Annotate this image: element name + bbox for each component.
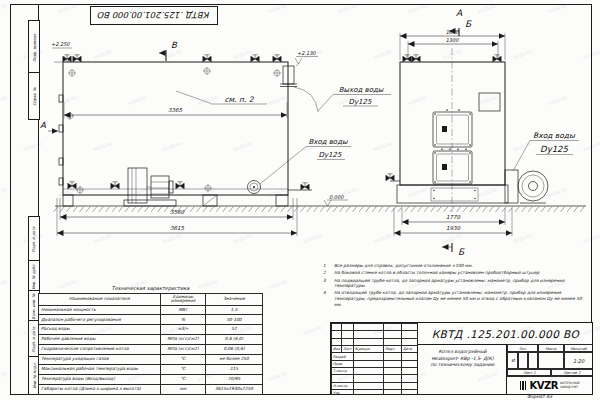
table-cell: МВт [161,305,206,315]
dim-3615: 3615 [170,225,184,231]
note-number: 2 [323,270,334,276]
product-name-line: Heatexpert- КВр -1,5- Д(К) [418,356,507,363]
table-row: Гидравлическое сопротивление котлаМПа (к… [39,345,263,355]
revision-row [332,338,418,345]
elevation-0000: 0.000 [329,194,344,200]
table-cell: МПа (кгс/см2) [161,335,206,345]
table-cell: Диапазон рабочего регулирования [39,315,161,325]
titleblock-right: Лит. Масса Масштаб И 1:20 Лист 1 Листов … [506,344,593,394]
margin-box-sprav: Справ. № [28,72,40,120]
margin-box-perv-primen: Перв. примен. [28,20,40,74]
dim-1770: 1770 [446,214,460,220]
dim-3560: 3560 [170,209,184,215]
table-row: Расход водым3/ч52 [39,325,263,335]
table-cell: °С [161,374,206,384]
row-prov: Пров. [332,360,354,367]
top-stamp-doc-number: КВТД .125.201.00.000 ВО [90,6,218,25]
hdr-izm: Изм [332,346,342,353]
tech-table-rows: Номинальная мощностьМВт1,5Диапазон рабоч… [39,305,263,394]
note-item: 1Все размеры для справок, допустимое отк… [323,263,587,269]
note-item: 3На подводящей трубе котла, до запорной … [323,278,587,289]
col-header-value: Значение [206,293,263,305]
water-outlet-label: Выход воды [339,86,384,94]
row-tkontr: Т.контр. [332,368,354,375]
table-header-row: Наименование показателя Единицы измерени… [39,293,263,305]
row-nkontr: Н.контр. [332,382,354,389]
margin-box-label: Подп. и дата [32,226,37,252]
hdr-podp: Подп. [384,346,402,353]
note-text: На подводящей трубе котла, до запорной а… [334,278,587,289]
dim-1930: 1930 [446,225,460,231]
title-block: Изм Лист N докум. Подп. Дата Разраб. Про… [330,322,593,395]
margin-box-label: Инв. № подл. [32,362,37,388]
logo-text: KVZR [529,380,557,391]
table-cell: Гидравлическое сопротивление котла [39,345,161,355]
note-text: На боковой стенке котла в области топочн… [334,270,539,276]
table-cell: 0,06 (0,6) [206,345,263,355]
sign-row: Н.контр. [332,382,418,389]
table-cell: Максимальная рабочая температура воды [39,364,161,374]
section-label-b-top: Б [465,19,472,29]
dimensions: 3365 3560 3615 1600 1300 1770 1930 [57,29,512,237]
note-number: 3 [323,278,334,289]
note-number: 1 [323,263,334,269]
grid-header-row: Изм Лист N докум. Подп. Дата [332,346,418,353]
table-cell: % [161,315,206,325]
elevation-2130: +2.130 [297,50,316,56]
sign-row: Утв. [332,390,418,395]
col-header-name: Наименование показателя [39,293,161,305]
table-cell: мм [161,384,206,394]
table-cell: 52 [206,325,263,335]
table-cell: °С [161,364,206,374]
revision-row [332,324,418,331]
table-cell: Номинальная мощность [39,305,161,315]
table-cell: МПа (кгс/см2) [161,345,206,355]
notes-block: 1Все размеры для справок, допустимое отк… [323,263,587,309]
hdr-data: Дата [402,346,418,353]
table-row: Габариты котла (Длина х ширина х высота)… [39,384,263,394]
logo-sub-line: ЗАВОД РЭП [560,386,580,389]
table-cell: Температура уходящих газов [39,354,161,364]
margin-box-label: Подп. и дата [32,326,37,352]
table-cell: °С [161,354,206,364]
table-cell: 0,6 (6,0) [206,335,263,345]
ground-line [54,206,587,212]
water-outlet-dy: Dy125 [349,98,372,106]
row-razrab: Разраб. [332,353,354,360]
upper-door [433,112,472,147]
inspection-window [479,93,500,111]
drawing-sheet: Перв. примен. Справ. № Подп. и дата Инв.… [0,0,600,400]
margin-box-label: Взам. инв. № [32,293,37,319]
product-name-line: по техническому заданию [418,362,507,369]
table-row: Температура воды (Вход/выход)°С70/95 [39,374,263,384]
dim-3365: 3365 [168,107,182,113]
water-inlet-front-dy: Dy125 [540,144,568,154]
table-row: Диапазон рабочего регулирования%50-100 [39,315,263,325]
logo-subtitle: КОТЕЛЬНЫЙ ЗАВОД РЭП [560,382,580,389]
table-cell: 3615х1930х2250 [206,384,263,394]
table-cell: Температура воды (Вход/выход) [39,374,161,384]
table-cell: 115 [206,364,263,374]
company-logo: KVZR КОТЕЛЬНЫЙ ЗАВОД РЭП [507,375,593,395]
elevation-2250: +2.250 [51,41,70,47]
margin-box-label: Справ. № [32,87,37,105]
section-label-b-bottom: Б [458,247,465,257]
table-cell: 70/95 [206,374,263,384]
side-inlet-flange [248,181,261,194]
hdr-dokum: N докум. [354,346,384,353]
table-row: Номинальная мощностьМВт1,5 [39,305,263,315]
table-cell: Рабочее давление воды [39,335,161,345]
sign-row [332,375,418,382]
note-text: На отводящей трубе котла, до запорной ар… [334,290,587,307]
margin-box-label: Перв. примен. [32,33,37,62]
section-label-a-top: А [456,8,463,18]
col-header-units: Единицы измерения [161,293,206,305]
dim-1600: 1600 [446,29,460,35]
notes-list: 1Все размеры для справок, допустимое отк… [323,263,587,307]
doc-number: КВТД .125.201.00.000 ВО [417,323,593,345]
table-cell: не более 250 [206,354,263,364]
see-note-label: см. п. 2 [225,95,255,104]
note-number: 4 [323,290,334,307]
lower-door [433,151,472,184]
table-row: Температура уходящих газов°Сне более 250 [39,354,263,364]
table-cell: Габариты котла (Длина х ширина х высота) [39,384,161,394]
margin-box-podp-data-1: Подп. и дата [28,216,40,262]
note-text: Все размеры для справок, допустимое откл… [334,263,473,269]
hdr-list: Лист [342,346,354,353]
view-label-v: В [171,40,178,50]
boiler-front-view [386,48,548,212]
table-cell: Расход воды [39,325,161,335]
pump-unit [124,168,176,206]
row-utv: Утв. [332,390,354,395]
format-note: Формат А3 [527,394,552,399]
revision-row [332,331,418,338]
titleblock-left-grid: Изм Лист N докум. Подп. Дата Разраб. Про… [331,323,418,395]
top-outlet-pipe [280,66,318,112]
note-item: 2На боковой стенке котла в области топоч… [323,270,587,276]
table-cell: 1,5 [206,305,263,315]
tech-table-title: Техническая характеристика [38,285,263,291]
tech-table: Наименование показателя Единицы измерени… [38,293,263,395]
front-base-frame [397,185,508,203]
blower-fan [505,170,548,203]
table-cell: м3/ч [161,325,206,335]
water-inlet-side-label: Вход воды [308,138,348,146]
logo-stripes-icon [520,381,527,390]
table-row: Рабочее давление водыМПа (кгс/см2)0,6 (6… [39,335,263,345]
table-cell: 50-100 [206,315,263,325]
water-inlet-side-dy: Dy125 [319,151,342,159]
product-name: Котел водогрейный Heatexpert- КВр -1,5- … [417,344,507,395]
water-inlet-front-label: Вход воды [533,131,576,140]
sign-row: Т.контр. [332,368,418,375]
table-row: Максимальная рабочая температура воды°С1… [39,364,263,374]
sign-row: Пров. [332,360,418,367]
tech-characteristics: Техническая характеристика Наименование … [38,285,263,395]
boiler-side-view [59,55,318,206]
note-item: 4На отводящей трубе котла, до запорной а… [323,290,587,307]
dim-1300: 1300 [446,37,460,43]
product-name-line: Котел водогрейный [418,349,507,356]
section-label-a-side: А [40,120,46,130]
margin-box-label: Инв. № дубл. [32,263,37,289]
sign-row: Разраб. [332,353,418,360]
